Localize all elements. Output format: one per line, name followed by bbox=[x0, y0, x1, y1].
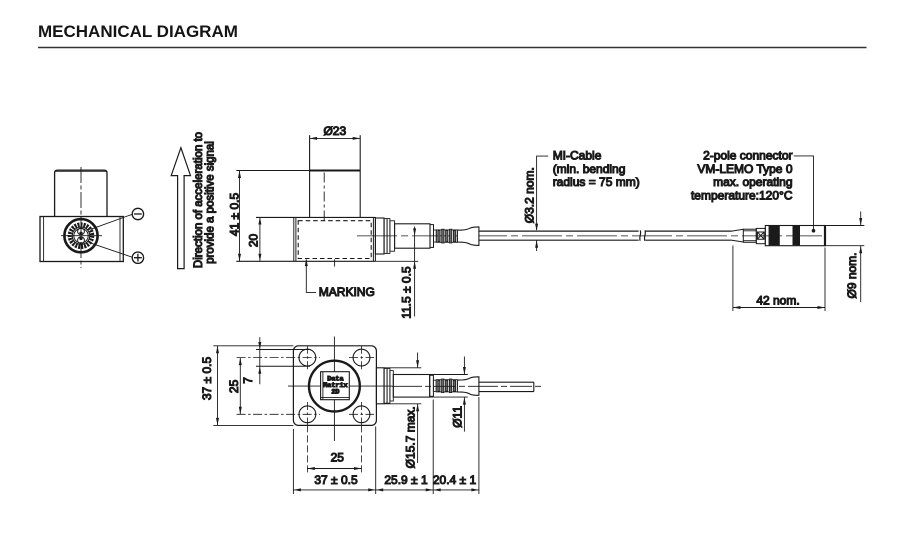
svg-text:20: 20 bbox=[247, 234, 261, 248]
svg-text:41 ± 0.5: 41 ± 0.5 bbox=[228, 193, 242, 237]
svg-text:42 nom.: 42 nom. bbox=[756, 294, 799, 308]
svg-text:25: 25 bbox=[331, 451, 345, 465]
svg-text:Ø23: Ø23 bbox=[323, 124, 346, 138]
svg-text:temperature:120°C: temperature:120°C bbox=[691, 189, 793, 203]
svg-text:(min. bending: (min. bending bbox=[553, 162, 626, 176]
svg-text:7: 7 bbox=[241, 377, 255, 384]
svg-text:provide a positive signal: provide a positive signal bbox=[204, 141, 216, 264]
svg-text:Direction of acceleration to: Direction of acceleration to bbox=[193, 132, 205, 268]
svg-text:MECHANICAL DIAGRAM: MECHANICAL DIAGRAM bbox=[38, 22, 238, 41]
svg-text:20.4 ± 1: 20.4 ± 1 bbox=[433, 473, 477, 487]
svg-text:37 ± 0.5: 37 ± 0.5 bbox=[314, 473, 358, 487]
svg-text:25: 25 bbox=[227, 379, 241, 393]
svg-text:MI-Cable: MI-Cable bbox=[553, 148, 602, 162]
svg-text:Ø11: Ø11 bbox=[450, 406, 464, 428]
svg-text:VM-LEMO Type 0: VM-LEMO Type 0 bbox=[697, 162, 792, 176]
svg-text:MARKING: MARKING bbox=[319, 285, 375, 299]
svg-text:radius = 75 mm): radius = 75 mm) bbox=[553, 175, 640, 189]
svg-text:Ø9 nom.: Ø9 nom. bbox=[845, 252, 859, 298]
svg-text:25.9 ± 1: 25.9 ± 1 bbox=[384, 473, 428, 487]
svg-text:11.5 ± 0.5: 11.5 ± 0.5 bbox=[400, 266, 414, 319]
svg-text:2D: 2D bbox=[331, 388, 339, 396]
svg-text:37 ± 0.5: 37 ± 0.5 bbox=[200, 357, 214, 401]
svg-text:Ø3.2 nom.: Ø3.2 nom. bbox=[522, 167, 536, 223]
svg-text:2-pole connector: 2-pole connector bbox=[703, 148, 792, 162]
svg-text:Ø15.7 max.: Ø15.7 max. bbox=[404, 406, 418, 468]
svg-text:max. operating: max. operating bbox=[713, 175, 792, 189]
